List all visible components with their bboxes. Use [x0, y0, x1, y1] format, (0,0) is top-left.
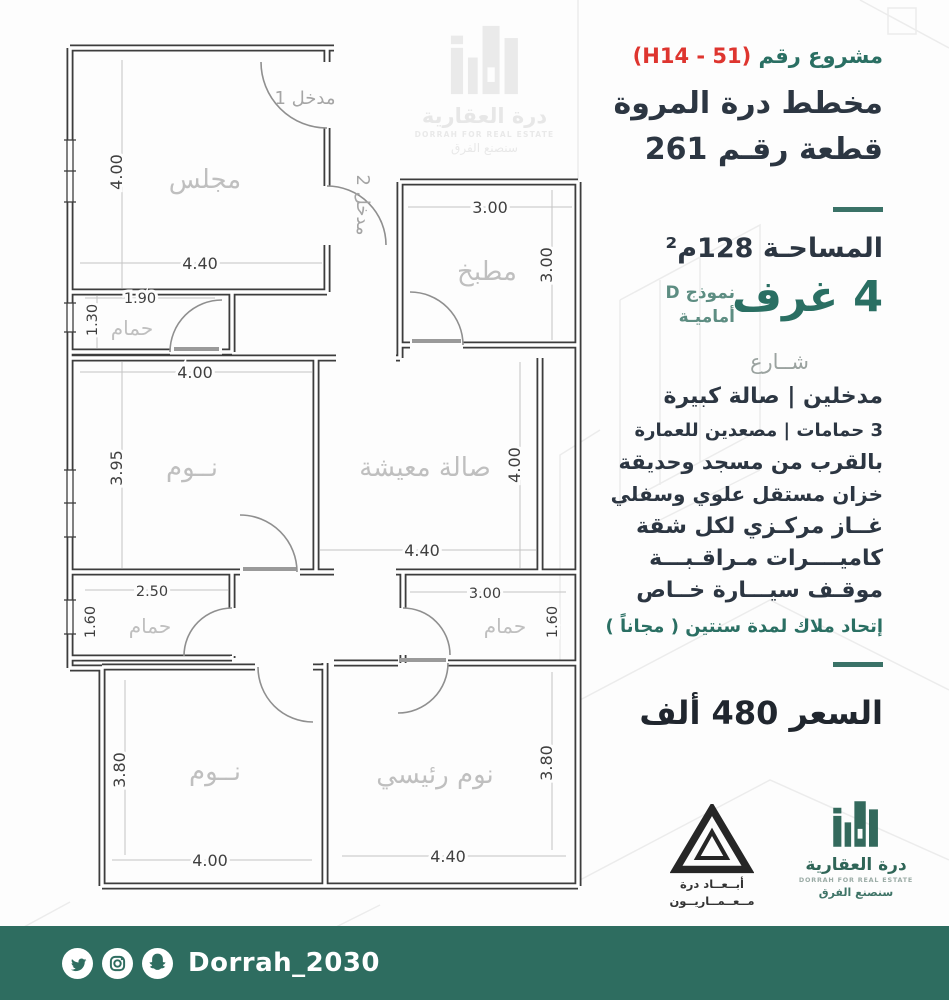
feature-baths-elevators: 3 حمامات | مصعدين للعمارة — [635, 420, 883, 441]
social-banner: Dorrah_2030 — [0, 926, 949, 1000]
dim-majlis-w: 4.40 — [182, 254, 218, 273]
room-majlis: مجلس — [169, 165, 241, 195]
dorrah-logo: درة العقارية DORRAH FOR REAL ESTATE سنصن… — [798, 796, 914, 899]
plot-number: قطعة رقـم 261 — [645, 132, 883, 167]
owners-union-line: إتحاد ملاك لمدة سنتين ( مجاناً ) — [606, 616, 883, 637]
dim-kitchen-w: 3.00 — [472, 198, 508, 217]
dim-bath-right-w: 3.00 — [469, 586, 501, 602]
plan-walls — [70, 48, 578, 886]
feature-entrances-hall: مدخلين | صالة كبيرة — [663, 384, 883, 409]
dim-bath-left-w: 2.50 — [136, 584, 168, 600]
rooms-count: 4 غرف — [732, 272, 883, 322]
model-name: نموذج D — [666, 282, 735, 306]
snapchat-icon[interactable] — [142, 948, 173, 979]
plan-title: مخطط درة المروة — [614, 86, 884, 121]
entrance-1-label: مدخل 1 — [274, 88, 335, 109]
dim-bath-top-w: 1.90 — [124, 291, 156, 307]
dim-bed-bottom-w: 4.00 — [192, 851, 228, 870]
feature-central-gas: غــاز مركـزي لكل شقة — [636, 514, 883, 539]
project-number-line: مشروع رقم (H14 - 51) — [633, 44, 883, 68]
model-block: نموذج D أماميـة — [666, 282, 735, 330]
feature-private-parking: موقـف سيـــارة خــاص — [636, 578, 883, 603]
social-handle[interactable]: Dorrah_2030 — [188, 948, 380, 978]
triangle-icon — [670, 804, 754, 876]
street-label: شــارع — [750, 350, 809, 374]
dim-kitchen-h: 3.00 — [537, 247, 556, 283]
dorrah-buildings-icon — [830, 796, 882, 852]
dim-majlis-h: 4.00 — [107, 154, 126, 190]
abaad-caption-2: مــعــمــاريــون — [662, 893, 762, 910]
abaad-caption-1: أبــعــاد درة — [662, 876, 762, 893]
entrance-2-label: مدخل 2 — [352, 174, 373, 235]
dim-living-w: 4.40 — [404, 541, 440, 560]
divider-top — [833, 207, 883, 212]
feature-water-tank: خزان مستقل علوي وسفلي — [611, 482, 883, 506]
price-line: السعر 480 ألف — [639, 694, 883, 732]
dim-living-h: 4.00 — [505, 447, 524, 483]
room-kitchen: مطبخ — [457, 257, 517, 287]
twitter-icon[interactable] — [62, 948, 93, 979]
project-code: (H14 - 51) — [633, 44, 752, 68]
dim-bed-mid-h: 3.95 — [107, 450, 126, 486]
room-bed-mid: نــوم — [166, 453, 218, 483]
instagram-icon[interactable] — [102, 948, 133, 979]
project-label: مشروع رقم — [759, 44, 883, 68]
feature-cctv: كاميــــرات مـراقـبـــة — [649, 546, 883, 571]
room-bed-bottom: نــوم — [189, 757, 241, 787]
area-line: المساحـة 128م² — [665, 233, 883, 264]
dim-master-w: 4.40 — [430, 847, 466, 866]
dorrah-slogan: سنصنع الفرق — [798, 886, 914, 899]
floor-plan: 4.00 4.40 3.00 3.00 1.90 1.30 4.00 3.95 … — [0, 0, 620, 1000]
divider-bottom — [833, 662, 883, 667]
dim-bath-right-h: 1.60 — [545, 606, 561, 638]
abaad-logo: أبــعــاد درة مــعــمــاريــون — [662, 804, 762, 909]
dim-bed-bottom-h: 3.80 — [110, 752, 129, 788]
dorrah-brand-ar: درة العقارية — [798, 855, 914, 875]
flyer-canvas: درة العقارية DORRAH FOR REAL ESTATE سنصن… — [0, 0, 949, 1000]
room-bath-left: حمام — [129, 614, 171, 638]
feature-mosque-garden: بالقرب من مسجد وحديقة — [619, 450, 883, 474]
room-bath-top: حمام — [111, 316, 153, 340]
dim-bath-top-h: 1.30 — [85, 304, 101, 336]
dim-master-h: 3.80 — [537, 745, 556, 781]
model-sub: أماميـة — [666, 306, 735, 330]
room-bath-right: حمام — [484, 614, 526, 638]
dim-bed-mid-w: 4.00 — [177, 363, 213, 382]
dorrah-brand-en: DORRAH FOR REAL ESTATE — [798, 876, 914, 884]
dim-bath-left-h: 1.60 — [83, 606, 99, 638]
room-master: نوم رئيسي — [376, 760, 494, 790]
room-living: صالة معيشة — [359, 453, 491, 483]
